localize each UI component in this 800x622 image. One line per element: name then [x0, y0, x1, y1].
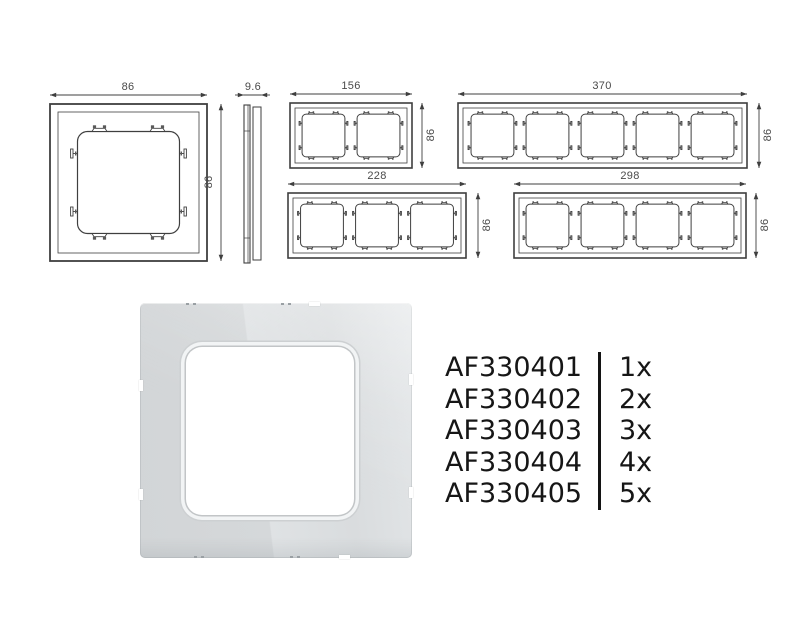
frame-clip-mark [186, 303, 189, 305]
frame-clip-mark [290, 556, 293, 558]
dim-label-width-370: 370 [592, 80, 611, 92]
product-code: AF330403 [445, 415, 598, 447]
dim-label-height-86: 86 [481, 219, 493, 232]
product-qty: 2x [598, 384, 652, 416]
product-qty: 5x [598, 478, 652, 510]
product-code: AF330401 [445, 352, 598, 384]
frame-clip-mark [409, 487, 413, 498]
product-code: AF330402 [445, 384, 598, 416]
frame-clip-mark [281, 303, 284, 305]
drawing-2gang-frame: 156 86 [282, 77, 444, 177]
frame-clip-mark [194, 556, 197, 558]
product-code-list: AF330401 1x AF330402 2x AF330403 3x AF33… [445, 352, 652, 510]
frame-clip-mark [309, 302, 320, 306]
drawing-4gang-frame: 298 86 [506, 168, 780, 268]
frame-clip-mark [339, 555, 350, 559]
product-photo-aperture [186, 347, 354, 515]
product-photo-single-frame [140, 303, 412, 558]
frame-clip-mark [288, 303, 291, 305]
product-code: AF330404 [445, 447, 598, 479]
drawing-side-profile: 9.6 [230, 78, 282, 274]
dim-label-width-156: 156 [341, 80, 360, 92]
dim-label-thickness-9-6: 9.6 [245, 81, 261, 93]
frame-clip-mark [139, 380, 143, 391]
dim-label-width-228: 228 [367, 170, 386, 182]
spec-sheet: 86 86 9.6 156 86 370 86 228 86 298 86 AF… [0, 0, 800, 622]
dim-label-height-86: 86 [759, 219, 771, 232]
drawing-3gang-frame: 228 86 [280, 168, 502, 268]
product-qty: 3x [598, 415, 652, 447]
dim-label-height-86: 86 [203, 176, 215, 189]
frame-clip-mark [297, 556, 300, 558]
dim-label-width-298: 298 [620, 170, 639, 182]
frame-clip-mark [409, 374, 413, 385]
frame-clip-mark [193, 303, 196, 305]
drawing-5gang-frame: 370 86 [450, 77, 780, 177]
frame-clip-mark [201, 556, 204, 558]
dim-label-width-86: 86 [122, 81, 135, 93]
product-code: AF330405 [445, 478, 598, 510]
dim-label-height-86: 86 [762, 129, 774, 142]
dim-label-height-86: 86 [425, 129, 437, 142]
drawing-single-frame-front: 86 86 [38, 78, 234, 274]
product-qty: 4x [598, 447, 652, 479]
frame-clip-mark [139, 489, 143, 500]
product-qty: 1x [598, 352, 652, 384]
